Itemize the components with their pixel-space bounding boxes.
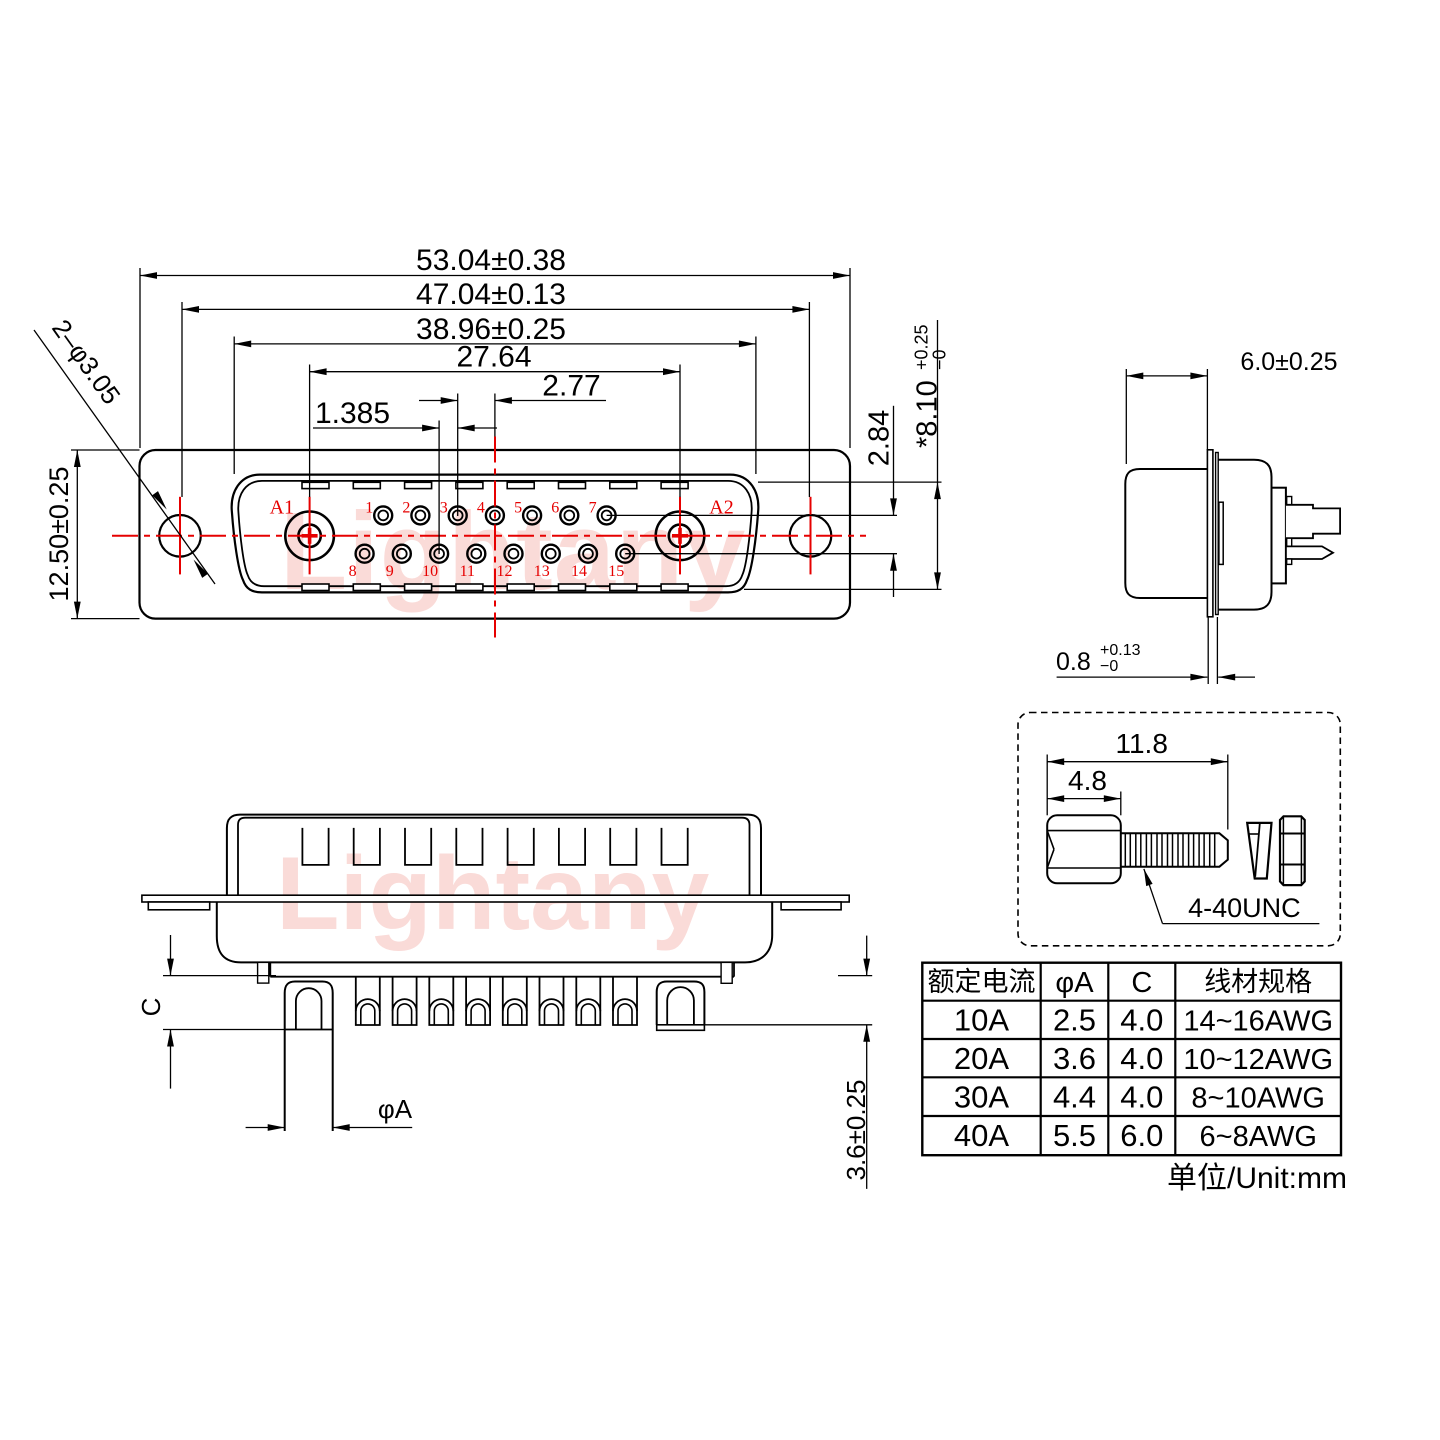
svg-text:2.84: 2.84 xyxy=(864,410,896,466)
svg-text:6: 6 xyxy=(551,500,559,517)
svg-text:单位/Unit:mm: 单位/Unit:mm xyxy=(1167,1162,1347,1195)
svg-text:27.64: 27.64 xyxy=(456,341,531,374)
svg-text:5.5: 5.5 xyxy=(1053,1118,1096,1153)
svg-text:C: C xyxy=(136,998,166,1017)
svg-text:47.04±0.13: 47.04±0.13 xyxy=(416,278,566,311)
svg-text:6.0: 6.0 xyxy=(1120,1118,1163,1153)
svg-text:2.77: 2.77 xyxy=(542,370,600,403)
svg-text:4.0: 4.0 xyxy=(1120,1041,1163,1076)
svg-text:2.5: 2.5 xyxy=(1053,1003,1096,1038)
svg-text:4.4: 4.4 xyxy=(1053,1079,1096,1114)
svg-text:额定电流: 额定电流 xyxy=(928,967,1036,997)
svg-text:13: 13 xyxy=(534,563,550,580)
svg-text:Lightany: Lightany xyxy=(276,836,709,952)
svg-text:10~12AWG: 10~12AWG xyxy=(1183,1044,1333,1076)
svg-text:12: 12 xyxy=(497,563,513,580)
svg-text:11.8: 11.8 xyxy=(1115,728,1167,759)
svg-text:8: 8 xyxy=(349,563,357,580)
svg-text:4.8: 4.8 xyxy=(1068,765,1107,796)
svg-text:20A: 20A xyxy=(954,1041,1009,1076)
svg-text:40A: 40A xyxy=(954,1118,1009,1153)
svg-text:30A: 30A xyxy=(954,1079,1009,1114)
svg-text:+0.13: +0.13 xyxy=(1100,642,1141,659)
svg-text:线材规格: 线材规格 xyxy=(1204,967,1312,997)
svg-text:−0: −0 xyxy=(1100,658,1118,675)
svg-text:+0.25: +0.25 xyxy=(912,324,932,370)
svg-text:6~8AWG: 6~8AWG xyxy=(1200,1121,1317,1153)
svg-text:3: 3 xyxy=(440,500,448,517)
svg-text:1: 1 xyxy=(365,500,373,517)
svg-text:10A: 10A xyxy=(954,1003,1009,1038)
svg-text:8~10AWG: 8~10AWG xyxy=(1191,1082,1325,1114)
svg-text:11: 11 xyxy=(460,563,475,580)
svg-text:53.04±0.38: 53.04±0.38 xyxy=(416,244,566,277)
svg-text:0.8: 0.8 xyxy=(1056,648,1091,676)
svg-text:1.385: 1.385 xyxy=(315,397,390,430)
svg-text:−0: −0 xyxy=(930,349,950,370)
svg-text:4: 4 xyxy=(477,500,485,517)
svg-text:φA: φA xyxy=(1055,967,1094,999)
svg-text:3.6±0.25: 3.6±0.25 xyxy=(841,1079,871,1180)
svg-text:7: 7 xyxy=(589,500,597,517)
svg-text:2: 2 xyxy=(402,500,410,517)
svg-text:15: 15 xyxy=(608,563,624,580)
svg-text:4-40UNC: 4-40UNC xyxy=(1188,893,1301,923)
svg-text:9: 9 xyxy=(386,563,394,580)
svg-text:14: 14 xyxy=(571,563,587,580)
svg-text:A1: A1 xyxy=(270,497,294,519)
svg-text:φA: φA xyxy=(378,1094,413,1124)
svg-text:3.6: 3.6 xyxy=(1053,1041,1096,1076)
svg-text:5: 5 xyxy=(514,500,522,517)
svg-text:4.0: 4.0 xyxy=(1120,1003,1163,1038)
svg-text:6.0±0.25: 6.0±0.25 xyxy=(1240,348,1337,376)
svg-text:4.0: 4.0 xyxy=(1120,1079,1163,1114)
svg-text:*8.10: *8.10 xyxy=(912,380,944,448)
svg-text:12.50±0.25: 12.50±0.25 xyxy=(44,467,74,602)
svg-text:14~16AWG: 14~16AWG xyxy=(1183,1006,1333,1038)
svg-text:C: C xyxy=(1131,967,1152,999)
svg-text:10: 10 xyxy=(422,563,438,580)
